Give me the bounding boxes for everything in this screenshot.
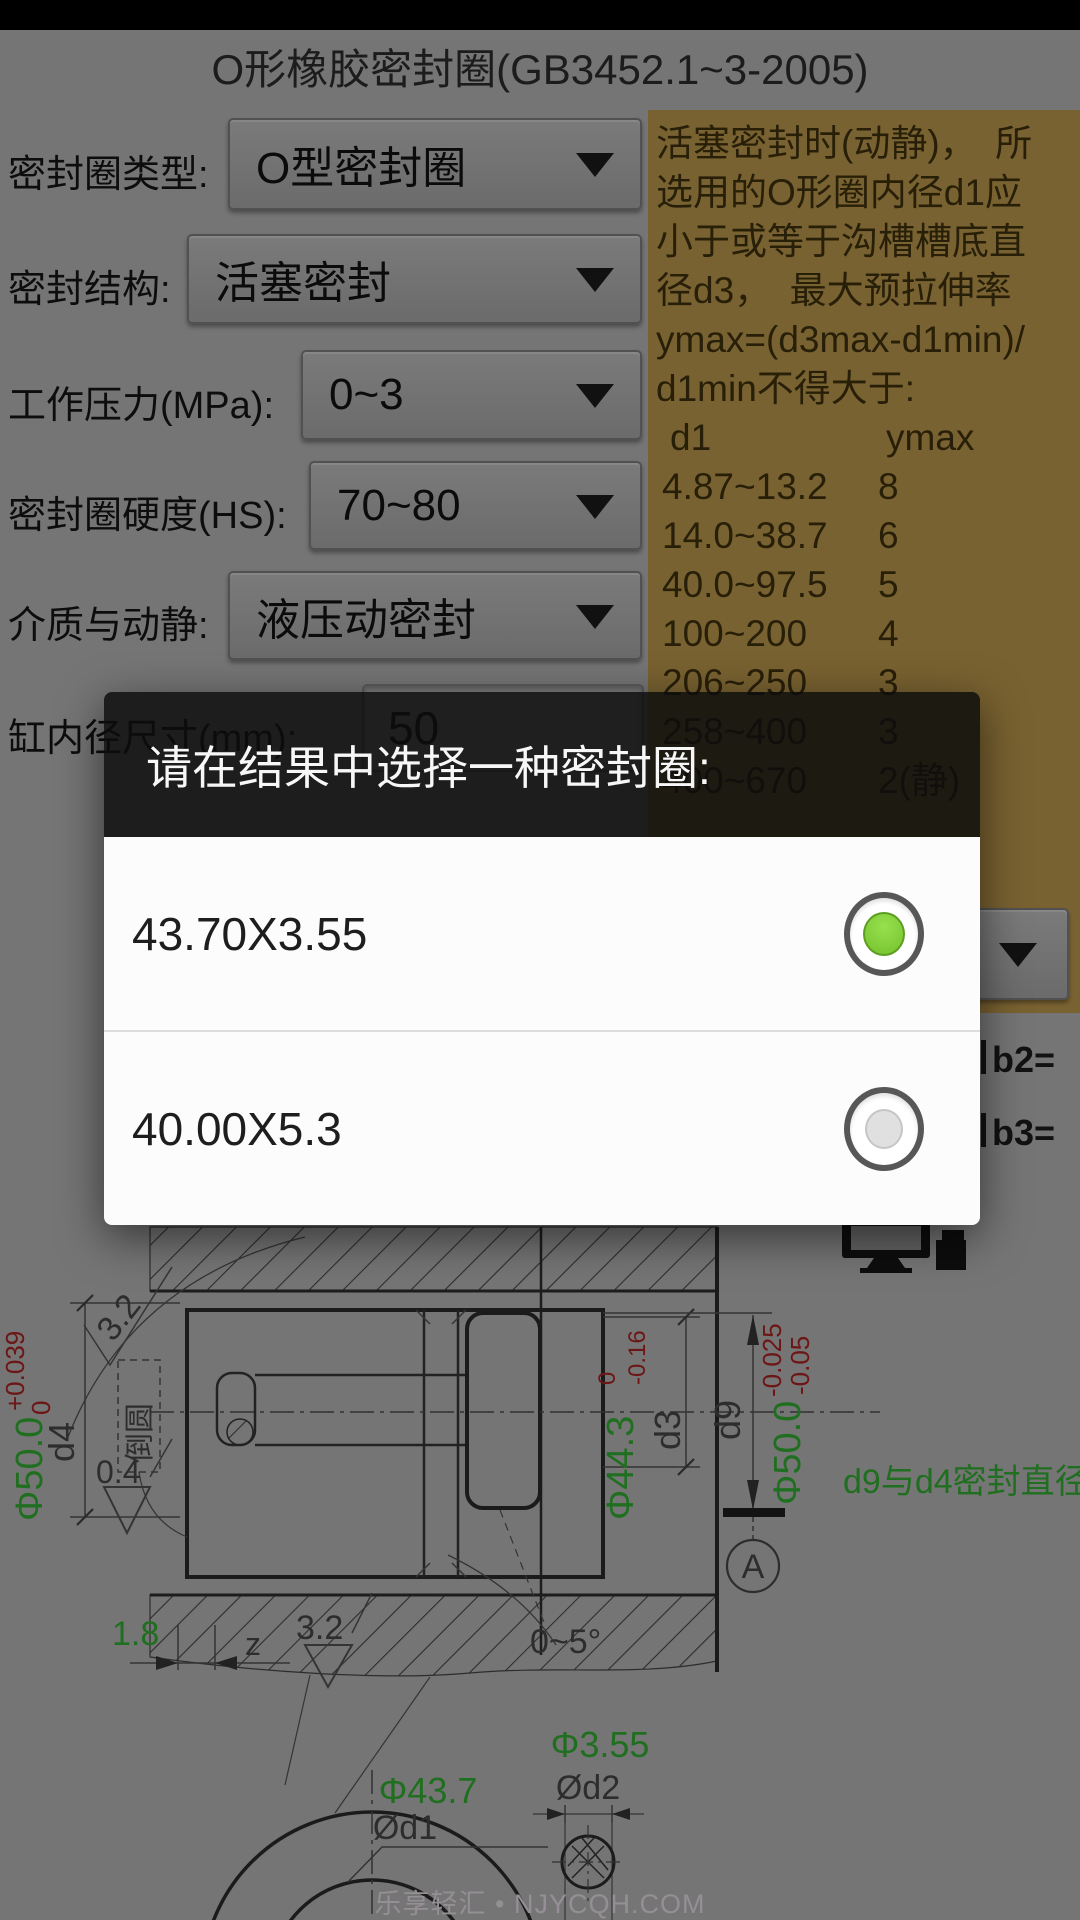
dim-d9: d9 bbox=[707, 1400, 748, 1440]
option-row-40.00X5.3[interactable]: 40.00X5.3 bbox=[104, 1032, 980, 1225]
panel-line: 小于或等于沟槽槽底直 bbox=[656, 217, 1080, 266]
tol-m0025: -0.025 bbox=[757, 1323, 787, 1397]
result-spinner[interactable] bbox=[975, 908, 1069, 1000]
dim-phi437: Φ43.7 bbox=[379, 1770, 478, 1811]
dim-phi355: Φ3.55 bbox=[551, 1724, 650, 1765]
dim-phi50-right: Φ50.0 bbox=[767, 1401, 809, 1505]
table-row: 4.87~13.28 bbox=[648, 462, 1080, 511]
field-label-pressure: 工作压力(MPa): bbox=[8, 374, 274, 429]
panel-line: 径d3， 最大预拉伸率 bbox=[656, 266, 1080, 315]
tol-m016: -0.16 bbox=[624, 1330, 651, 1385]
finish-04: 0.4 bbox=[96, 1454, 140, 1490]
selection-dialog: 请在结果中选择一种密封圈: 43.70X3.55 40.00X5.3 bbox=[104, 692, 980, 1225]
dim-d4: d4 bbox=[41, 1422, 82, 1462]
b3-label: b3= bbox=[992, 1112, 1055, 1154]
panel-line: 选用的O形圈内径d1应 bbox=[656, 168, 1080, 217]
technical-drawing: Φ50.0 +0.039 0 d4 倒圆 3.2 0.4 Φ44.3 0 -0.… bbox=[0, 1225, 1080, 1920]
finish-32-bottom: 3.2 bbox=[296, 1609, 343, 1647]
spinner-hardness[interactable]: 70~80 bbox=[309, 461, 642, 550]
field-label-seal-type: 密封圈类型: bbox=[8, 143, 209, 198]
spinner-medium[interactable]: 液压动密封 bbox=[228, 571, 642, 660]
spinner-pressure[interactable]: 0~3 bbox=[301, 350, 642, 440]
field-label-seal-structure: 密封结构: bbox=[8, 258, 171, 313]
page-title: O形橡胶密封圈(GB3452.1~3-2005) bbox=[0, 36, 1080, 97]
datum-a: A bbox=[742, 1548, 765, 1586]
table-row: 100~2004 bbox=[648, 609, 1080, 658]
dialog-body: 43.70X3.55 40.00X5.3 bbox=[104, 837, 980, 1225]
dim-od2: Ød2 bbox=[556, 1769, 620, 1807]
panel-line: ymax=(d3max-d1min)/ bbox=[656, 315, 1080, 364]
dim-d3: d3 bbox=[647, 1410, 688, 1450]
panel-line: 活塞密封时(动静)， 所 bbox=[656, 119, 1080, 168]
option-row-43.70X3.55[interactable]: 43.70X3.55 bbox=[104, 837, 980, 1031]
field-label-hardness: 密封圈硬度(HS): bbox=[8, 484, 287, 539]
clipped-glyph bbox=[981, 1113, 986, 1147]
spinner-seal-type-value: O型密封圈 bbox=[256, 132, 466, 196]
chevron-down-icon bbox=[576, 605, 614, 629]
finish-32-left: 3.2 bbox=[89, 1287, 148, 1348]
table-row: 14.0~38.76 bbox=[648, 511, 1080, 560]
dim-z: z bbox=[245, 1626, 261, 1662]
chevron-down-icon bbox=[576, 495, 614, 519]
option-label: 43.70X3.55 bbox=[132, 907, 367, 961]
chevron-down-icon bbox=[576, 153, 614, 177]
dim-phi443: Φ44.3 bbox=[600, 1416, 642, 1520]
spinner-seal-type[interactable]: O型密封圈 bbox=[228, 118, 642, 210]
oring-section bbox=[467, 1313, 540, 1508]
note-d9-d4: d9与d4密封直径 bbox=[843, 1463, 1080, 1501]
app-screen: O形橡胶密封圈(GB3452.1~3-2005) 密封圈类型: 密封结构: 工作… bbox=[0, 0, 1080, 1920]
chevron-down-icon bbox=[999, 943, 1037, 967]
dim-18: 1.8 bbox=[112, 1615, 159, 1653]
clipped-glyph bbox=[981, 1040, 986, 1074]
spinner-medium-value: 液压动密封 bbox=[256, 584, 476, 648]
status-bar bbox=[0, 0, 1080, 30]
tol-zero: 0 bbox=[26, 1401, 56, 1415]
spinner-pressure-value: 0~3 bbox=[329, 370, 404, 420]
table-header: d1 ymax bbox=[648, 413, 1080, 462]
spinner-hardness-value: 70~80 bbox=[337, 481, 461, 531]
tol-plus0039: +0.039 bbox=[0, 1331, 30, 1411]
radio-button[interactable] bbox=[844, 892, 924, 976]
spinner-seal-structure-value: 活塞密封 bbox=[215, 247, 391, 311]
panel-line: d1min不得大于: bbox=[656, 364, 1080, 413]
cylinder-wall-top bbox=[150, 1227, 717, 1291]
tol-m005: -0.05 bbox=[785, 1336, 815, 1395]
chevron-down-icon bbox=[576, 384, 614, 408]
dim-od1: Ød1 bbox=[373, 1809, 437, 1847]
b2-label: b2= bbox=[992, 1039, 1055, 1081]
radio-dot bbox=[863, 912, 905, 956]
radio-button[interactable] bbox=[844, 1087, 924, 1171]
table-row: 40.0~97.55 bbox=[648, 560, 1080, 609]
chevron-down-icon bbox=[576, 268, 614, 292]
dialog-title: 请在结果中选择一种密封圈: bbox=[146, 732, 711, 798]
dialog-header: 请在结果中选择一种密封圈: bbox=[104, 692, 980, 837]
radio-dot bbox=[865, 1109, 903, 1149]
watermark-credit: 乐享轻汇 • NJYCQH.COM bbox=[0, 1882, 1080, 1920]
spinner-seal-structure[interactable]: 活塞密封 bbox=[187, 234, 642, 324]
tol-zero2: 0 bbox=[594, 1372, 621, 1385]
option-label: 40.00X5.3 bbox=[132, 1102, 342, 1156]
dim-angle: 0~5° bbox=[530, 1623, 601, 1661]
field-label-medium: 介质与动静: bbox=[8, 594, 209, 649]
